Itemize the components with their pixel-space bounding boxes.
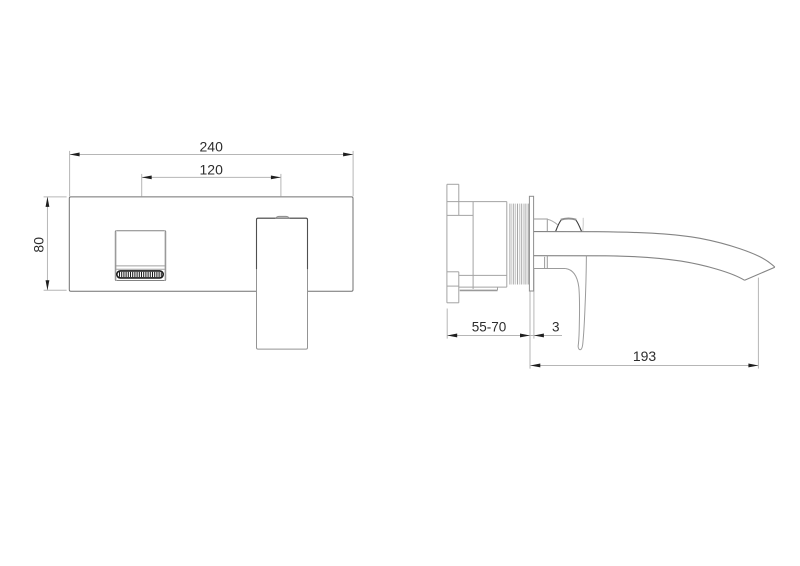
- svg-text:120: 120: [200, 161, 224, 177]
- svg-text:3: 3: [552, 319, 560, 334]
- svg-text:240: 240: [200, 138, 224, 154]
- svg-text:55-70: 55-70: [472, 319, 507, 334]
- svg-text:80: 80: [30, 237, 46, 253]
- svg-text:193: 193: [633, 348, 657, 364]
